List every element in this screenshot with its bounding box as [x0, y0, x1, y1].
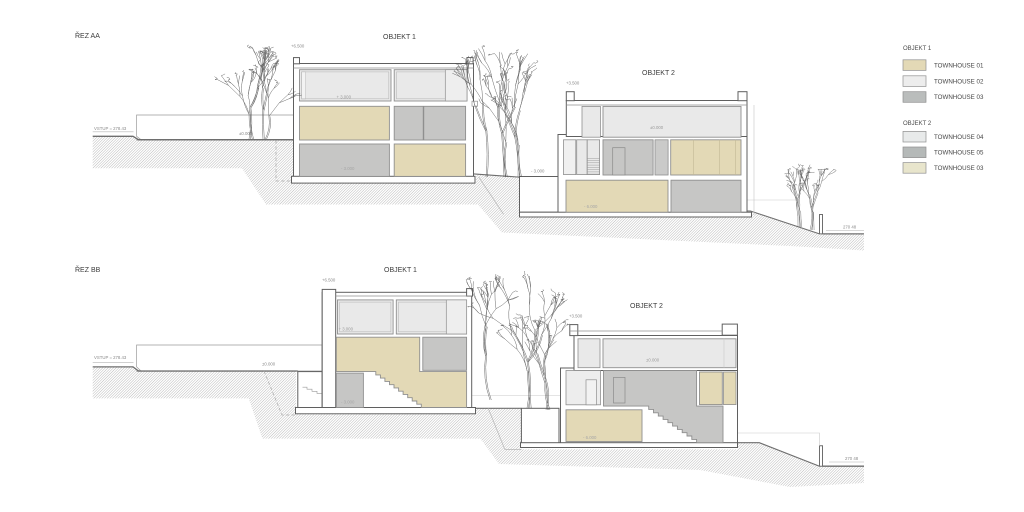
svg-text:±0.000: ±0.000	[646, 358, 660, 363]
svg-text:VSTUP = 278.43: VSTUP = 278.43	[94, 126, 127, 131]
svg-text:OBJEKT 2: OBJEKT 2	[630, 303, 663, 310]
svg-text:±0.000: ±0.000	[262, 362, 276, 367]
svg-text:OBJEKT 1: OBJEKT 1	[383, 34, 416, 41]
svg-text:270 48: 270 48	[843, 225, 857, 230]
svg-text:+6.500: +6.500	[291, 44, 305, 49]
svg-text:OBJEKT 1: OBJEKT 1	[903, 46, 932, 52]
svg-text:- 6.000: - 6.000	[584, 204, 598, 209]
svg-text:+6.500: +6.500	[322, 278, 336, 283]
svg-text:VSTUP = 278.43: VSTUP = 278.43	[94, 355, 127, 360]
svg-text:+ 3.000: + 3.000	[337, 95, 352, 100]
svg-text:TOWNHOUSE 04: TOWNHOUSE 04	[934, 134, 984, 141]
svg-text:+3.500: +3.500	[566, 81, 580, 86]
svg-text:TOWNHOUSE 05: TOWNHOUSE 05	[934, 150, 984, 157]
svg-text:- 3.000: - 3.000	[341, 399, 355, 404]
svg-text:OBJEKT 1: OBJEKT 1	[384, 267, 417, 274]
svg-text:TOWNHOUSE 01: TOWNHOUSE 01	[934, 62, 984, 69]
svg-text:TOWNHOUSE 02: TOWNHOUSE 02	[934, 78, 984, 85]
svg-text:ŘEZ AA: ŘEZ AA	[75, 31, 100, 40]
svg-text:+3.500: +3.500	[569, 314, 583, 319]
svg-text:TOWNHOUSE 03: TOWNHOUSE 03	[934, 94, 984, 101]
svg-text:270 48: 270 48	[845, 456, 859, 461]
svg-text:+ 3.000: + 3.000	[339, 327, 354, 332]
svg-text:OBJEKT 2: OBJEKT 2	[642, 70, 675, 77]
svg-text:±0.000: ±0.000	[650, 125, 664, 130]
svg-text:ŘEZ BB: ŘEZ BB	[75, 265, 101, 274]
svg-text:- 3.000: - 3.000	[341, 166, 355, 171]
svg-text:- 6.000: - 6.000	[583, 435, 597, 440]
svg-text:OBJEKT 2: OBJEKT 2	[903, 121, 932, 127]
svg-text:- 3.000: - 3.000	[531, 169, 545, 174]
svg-text:TOWNHOUSE 03: TOWNHOUSE 03	[934, 165, 984, 172]
